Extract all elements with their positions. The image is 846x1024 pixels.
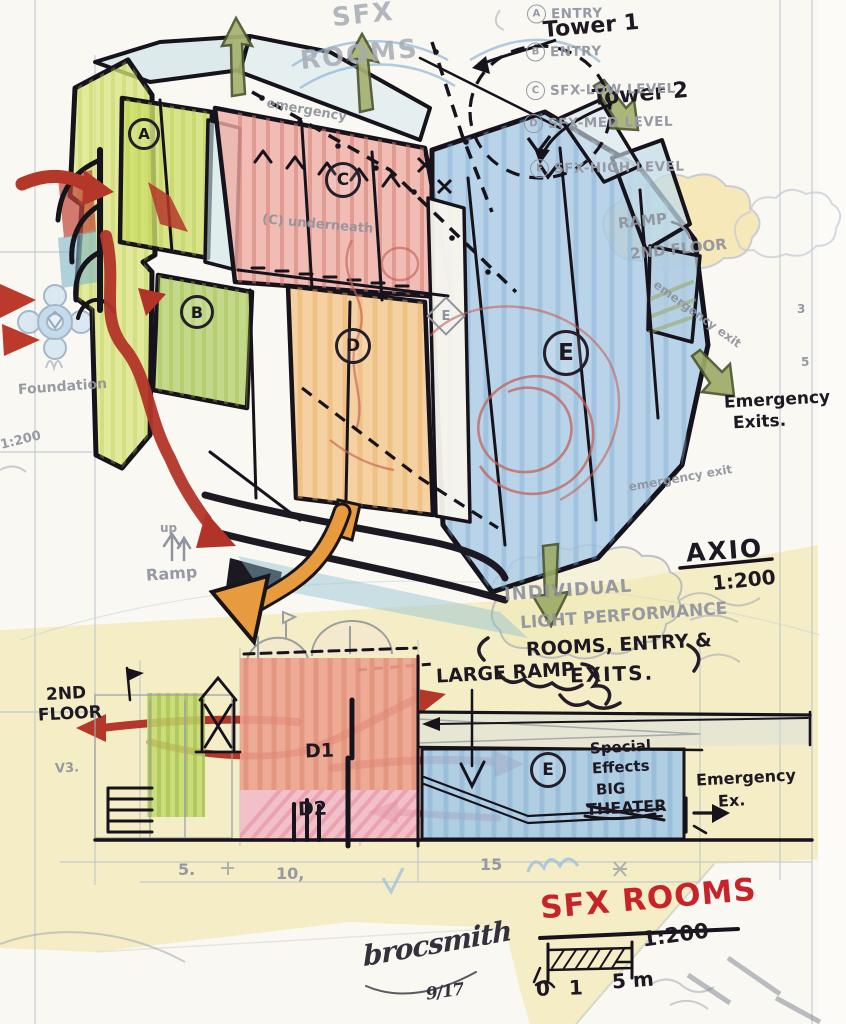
theater-line4: THEATER [586,798,667,818]
up-ramp-line2: Ramp [146,564,198,584]
sketch-artwork [0,0,846,1024]
room-d1-label: D1 [305,741,335,761]
zone-marker-c: C [325,162,361,198]
theater-line2: Effects [592,759,650,777]
emergency-exits-line2: Exits. [733,413,787,433]
scalebar-zero-label: 0 1 [536,977,589,999]
zone-marker-d: D [335,328,371,364]
pencil-title-line1: SFX [331,0,396,31]
legend-label-e: SFX-HIGH LEVEL [554,158,685,176]
second-floor-line2: FLOOR [38,704,103,724]
scalebar-five-label: 5 m [611,969,654,992]
zone-marker-a: A [128,118,160,150]
sketch-page: SFX ROOMS Tower 1 Tower 2 A ENTRY B ENTR… [0,0,846,1024]
section-emergency-line2: Ex. [718,792,746,809]
legend-row-b: B ENTRY [526,41,602,61]
legend-key-d: D [524,114,543,133]
second-floor-line1: 2ND [46,685,87,704]
legend-label-b: ENTRY [550,43,602,60]
zone-marker-e: E [543,330,589,376]
legend-label-a: ENTRY [551,5,603,22]
cloud-marker-line2: EXITS. [570,663,655,686]
legend-row-a: A ENTRY [527,3,603,23]
legend-key-c: C [526,81,545,100]
tick-10: 10, [276,866,304,882]
legend-label-c: SFX-LOW LEVEL [550,80,676,98]
legend-key-e: E [530,159,549,178]
axio-title: AXIO [685,535,764,565]
legend-row-d: D SFX-MED LEVEL [524,112,673,134]
tick-5: 5. [178,862,195,878]
theater-letter-circle: E [530,752,566,788]
elevation-mark: V3. [55,761,80,775]
inner-white-tower [428,198,470,522]
margin-num-5: 5 [801,356,809,368]
axio-scale: 1:200 [711,567,776,594]
legend-key-b: B [526,42,545,61]
zone-marker-b: B [180,295,214,329]
legend-row-c: C SFX-LOW LEVEL [526,79,676,101]
margin-num-3: 3 [797,303,805,315]
tick-15: 15 [480,857,502,873]
theater-line3: BIG [596,781,626,798]
legend-label-d: SFX-MED LEVEL [548,113,673,131]
room-d2-label: D2 [298,799,328,819]
theater-line1: Special [590,738,652,756]
up-ramp-line1: up [160,522,177,534]
legend-key-a: A [527,4,546,23]
legend-row-e: E SFX-HIGH LEVEL [530,157,685,179]
